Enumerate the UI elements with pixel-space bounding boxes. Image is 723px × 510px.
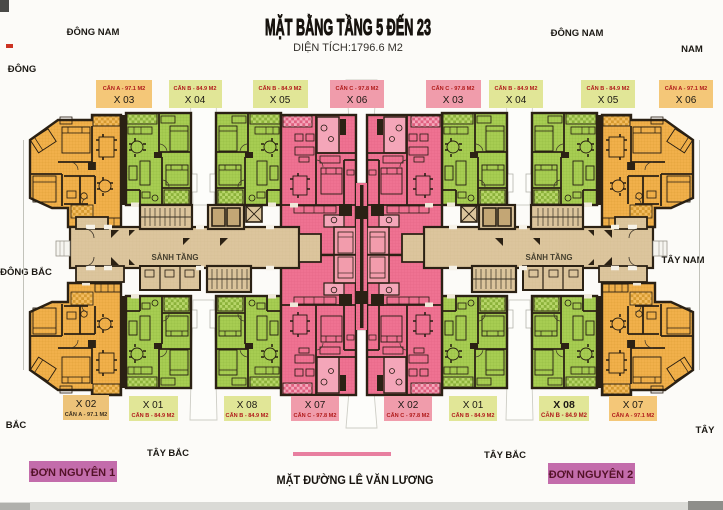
svg-text:X 04: X 04 <box>185 95 206 106</box>
svg-text:CĂN C - 97.8 M2: CĂN C - 97.8 M2 <box>336 85 379 92</box>
svg-text:ĐÔNG: ĐÔNG <box>8 63 37 75</box>
svg-text:MẶT BẰNG TẦNG 5 ĐẾN 23: MẶT BẰNG TẦNG 5 ĐẾN 23 <box>265 13 431 40</box>
svg-text:TÂY: TÂY <box>696 424 716 436</box>
svg-text:X 01: X 01 <box>143 400 164 411</box>
svg-text:CĂN B - 84.9 M2: CĂN B - 84.9 M2 <box>174 85 217 92</box>
svg-text:CĂN A - 97.1 M2: CĂN A - 97.1 M2 <box>612 412 654 419</box>
svg-text:ĐƠN NGUYÊN 2: ĐƠN NGUYÊN 2 <box>549 468 634 481</box>
svg-text:ĐÔNG BẮC: ĐÔNG BẮC <box>0 266 52 278</box>
svg-text:ĐÔNG NAM: ĐÔNG NAM <box>551 27 604 39</box>
svg-text:X 07: X 07 <box>305 400 326 411</box>
svg-text:NAM: NAM <box>681 44 703 55</box>
svg-text:CĂN B - 84.9 M2: CĂN B - 84.9 M2 <box>541 412 588 419</box>
svg-text:TÂY BẮC: TÂY BẮC <box>147 447 189 459</box>
svg-text:CĂN C - 97.8 M2: CĂN C - 97.8 M2 <box>387 412 430 419</box>
svg-text:X 03: X 03 <box>114 95 135 106</box>
svg-text:X 06: X 06 <box>347 95 368 106</box>
svg-text:CĂN B - 84.9 M2: CĂN B - 84.9 M2 <box>452 412 495 419</box>
svg-text:X 04: X 04 <box>506 95 527 106</box>
svg-text:X 08: X 08 <box>237 400 258 411</box>
svg-text:MẶT ĐƯỜNG LÊ VĂN LƯƠNG: MẶT ĐƯỜNG LÊ VĂN LƯƠNG <box>277 472 434 487</box>
svg-text:ĐÔNG NAM: ĐÔNG NAM <box>67 26 120 38</box>
svg-text:X 02: X 02 <box>398 400 419 411</box>
svg-text:X 02: X 02 <box>76 399 97 410</box>
svg-text:X 01: X 01 <box>463 400 484 411</box>
svg-text:SẢNH TẦNG: SẢNH TẦNG <box>526 251 573 262</box>
svg-text:ĐƠN NGUYÊN 1: ĐƠN NGUYÊN 1 <box>31 466 116 479</box>
svg-text:CĂN C - 97.8 M2: CĂN C - 97.8 M2 <box>294 412 337 419</box>
svg-text:X 03: X 03 <box>443 95 464 106</box>
svg-text:CĂN B - 84.9 M2: CĂN B - 84.9 M2 <box>132 412 175 419</box>
svg-text:CĂN C - 97.8 M2: CĂN C - 97.8 M2 <box>432 85 475 92</box>
svg-text:X 08: X 08 <box>553 399 575 411</box>
svg-text:CĂN B - 84.9 M2: CĂN B - 84.9 M2 <box>495 85 538 92</box>
svg-text:CĂN B - 84.9 M2: CĂN B - 84.9 M2 <box>226 412 269 419</box>
svg-text:X 06: X 06 <box>676 95 697 106</box>
svg-text:BẮC: BẮC <box>6 420 27 431</box>
svg-text:X 05: X 05 <box>270 95 291 106</box>
svg-text:CĂN A - 97.1 M2: CĂN A - 97.1 M2 <box>103 85 145 92</box>
svg-text:X 07: X 07 <box>623 400 644 411</box>
svg-text:X 05: X 05 <box>598 95 619 106</box>
svg-text:DIỆN TÍCH:1796.6 M2: DIỆN TÍCH:1796.6 M2 <box>293 41 403 54</box>
svg-text:SẢNH TẦNG: SẢNH TẦNG <box>152 251 199 262</box>
svg-text:CĂN A - 97.1 M2: CĂN A - 97.1 M2 <box>665 85 707 92</box>
svg-text:CĂN B - 84.9 M2: CĂN B - 84.9 M2 <box>587 85 630 92</box>
svg-text:CĂN B - 84.9 M2: CĂN B - 84.9 M2 <box>259 85 302 92</box>
svg-text:CĂN A - 97.1 M2: CĂN A - 97.1 M2 <box>65 411 107 418</box>
svg-text:TÂY NAM: TÂY NAM <box>661 254 704 266</box>
svg-text:TÂY BẮC: TÂY BẮC <box>484 449 526 461</box>
